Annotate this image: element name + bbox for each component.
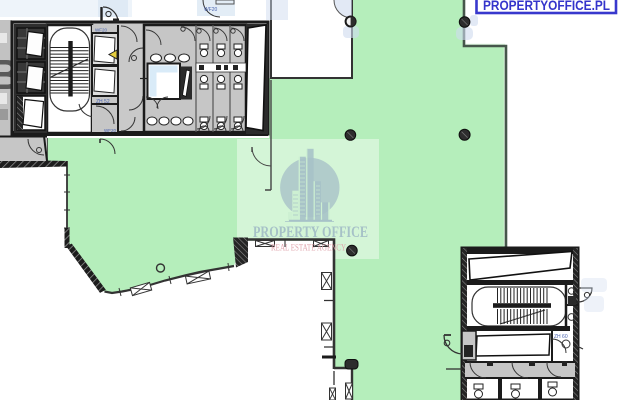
svg-text:WF20: WF20: [104, 128, 116, 133]
svg-text:WF20: WF20: [95, 28, 107, 33]
svg-text:WF20: WF20: [204, 7, 218, 13]
svg-text:REAL ESTATE AGENCY: REAL ESTATE AGENCY: [271, 243, 346, 253]
svg-text:PROPERTYOFFICE.PL: PROPERTYOFFICE.PL: [483, 0, 610, 13]
svg-text:ZH 60: ZH 60: [554, 334, 568, 340]
svg-text:ZH 52: ZH 52: [96, 99, 110, 105]
svg-text:PROPERTY OFFICE: PROPERTY OFFICE: [253, 224, 368, 241]
